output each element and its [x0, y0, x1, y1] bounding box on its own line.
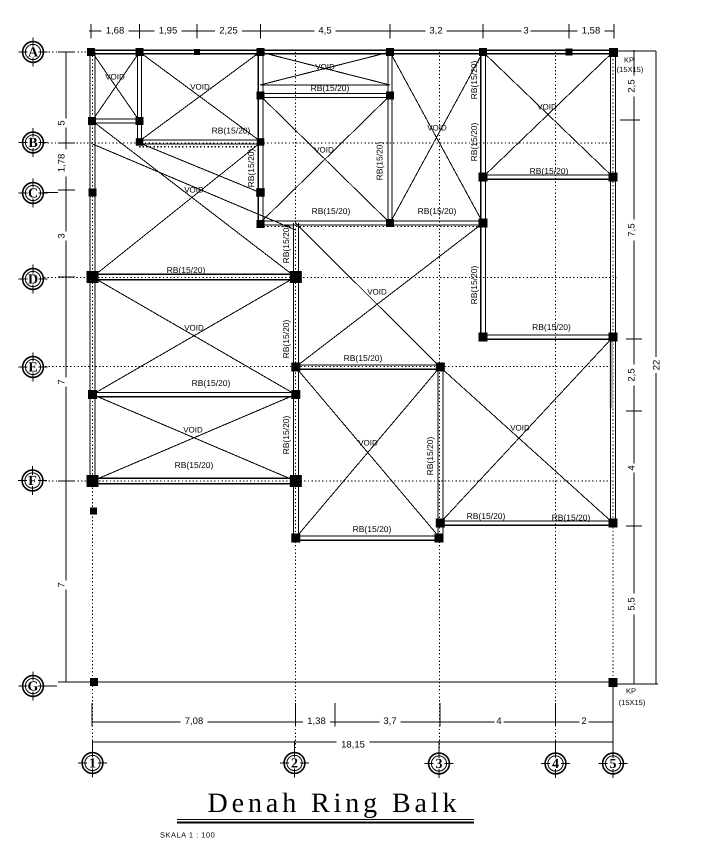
svg-text:A: A: [28, 45, 39, 60]
svg-text:RB(15/20): RB(15/20): [530, 166, 569, 176]
svg-text:RB(15/20): RB(15/20): [418, 206, 457, 216]
svg-text:KP: KP: [626, 687, 636, 696]
svg-text:3: 3: [57, 233, 68, 238]
svg-text:RB(15/20): RB(15/20): [552, 513, 591, 523]
svg-text:SKALA 1 : 100: SKALA 1 : 100: [160, 831, 215, 840]
svg-text:VOID: VOID: [315, 63, 335, 72]
svg-text:5: 5: [610, 757, 617, 772]
svg-text:4: 4: [496, 716, 501, 727]
svg-text:RB(15/20): RB(15/20): [281, 415, 291, 454]
svg-text:RB(15/20): RB(15/20): [311, 83, 350, 93]
svg-text:C: C: [28, 186, 38, 201]
svg-text:RB(15/20): RB(15/20): [312, 206, 351, 216]
svg-text:RB(15/20): RB(15/20): [469, 122, 479, 161]
svg-text:(15X15): (15X15): [617, 65, 644, 74]
svg-text:VOID: VOID: [184, 186, 204, 195]
svg-text:VOID: VOID: [314, 146, 334, 155]
svg-text:7: 7: [57, 379, 68, 384]
svg-text:1,58: 1,58: [582, 26, 601, 37]
svg-text:VOID: VOID: [537, 103, 557, 112]
svg-text:B: B: [28, 136, 37, 151]
svg-text:VOID: VOID: [105, 73, 125, 82]
svg-text:2,5: 2,5: [627, 368, 638, 381]
svg-text:1,95: 1,95: [159, 26, 178, 37]
svg-text:3: 3: [436, 757, 443, 772]
svg-text:RB(15/20): RB(15/20): [469, 265, 479, 304]
svg-text:4: 4: [627, 465, 638, 470]
svg-text:2: 2: [291, 756, 298, 771]
svg-text:VOID: VOID: [510, 424, 530, 433]
svg-text:5,5: 5,5: [627, 597, 638, 610]
svg-text:RB(15/20): RB(15/20): [532, 322, 571, 332]
svg-text:RB(15/20): RB(15/20): [375, 141, 385, 180]
svg-text:E: E: [28, 360, 37, 375]
svg-text:RB(15/20): RB(15/20): [353, 524, 392, 534]
svg-text:VOID: VOID: [427, 124, 447, 133]
svg-text:18,15: 18,15: [341, 740, 365, 751]
svg-text:VOID: VOID: [190, 83, 210, 92]
svg-text:RB(15/20): RB(15/20): [175, 460, 214, 470]
svg-text:2: 2: [581, 716, 586, 727]
svg-text:RB(15/20): RB(15/20): [425, 436, 435, 475]
svg-text:RB(15/20): RB(15/20): [467, 511, 506, 521]
svg-text:RB(15/20): RB(15/20): [469, 60, 479, 99]
svg-text:VOID: VOID: [184, 324, 204, 333]
svg-text:1: 1: [89, 756, 96, 771]
svg-text:F: F: [28, 474, 37, 489]
svg-text:RB(15/20): RB(15/20): [281, 224, 291, 263]
svg-text:5: 5: [57, 120, 68, 125]
svg-text:2,5: 2,5: [627, 79, 638, 92]
svg-text:(15X15): (15X15): [619, 698, 646, 707]
svg-text:1,68: 1,68: [106, 26, 125, 37]
svg-text:D: D: [28, 272, 38, 287]
svg-text:VOID: VOID: [358, 439, 378, 448]
svg-text:RB(15/20): RB(15/20): [192, 378, 231, 388]
svg-text:1,38: 1,38: [307, 716, 326, 727]
svg-text:4,5: 4,5: [318, 26, 331, 37]
svg-text:RB(15/20): RB(15/20): [246, 148, 256, 187]
svg-text:2,25: 2,25: [219, 26, 238, 37]
svg-text:RB(15/20): RB(15/20): [212, 126, 251, 136]
svg-text:VOID: VOID: [367, 288, 387, 297]
svg-text:G: G: [28, 679, 39, 694]
svg-text:1,78: 1,78: [57, 154, 68, 173]
svg-text:22: 22: [652, 360, 663, 371]
svg-text:3,7: 3,7: [383, 716, 396, 727]
svg-text:7,5: 7,5: [627, 223, 638, 236]
svg-text:RB(15/20): RB(15/20): [344, 353, 383, 363]
svg-text:KP: KP: [624, 56, 634, 65]
svg-text:Denah Ring Balk: Denah Ring Balk: [208, 788, 461, 819]
svg-text:RB(15/20): RB(15/20): [281, 319, 291, 358]
svg-text:3: 3: [523, 26, 528, 37]
svg-text:3,2: 3,2: [429, 26, 442, 37]
svg-text:4: 4: [552, 757, 559, 772]
svg-text:RB(15/20): RB(15/20): [167, 265, 206, 275]
svg-text:VOID: VOID: [183, 426, 203, 435]
svg-text:7: 7: [57, 582, 68, 587]
svg-text:7,08: 7,08: [185, 716, 204, 727]
